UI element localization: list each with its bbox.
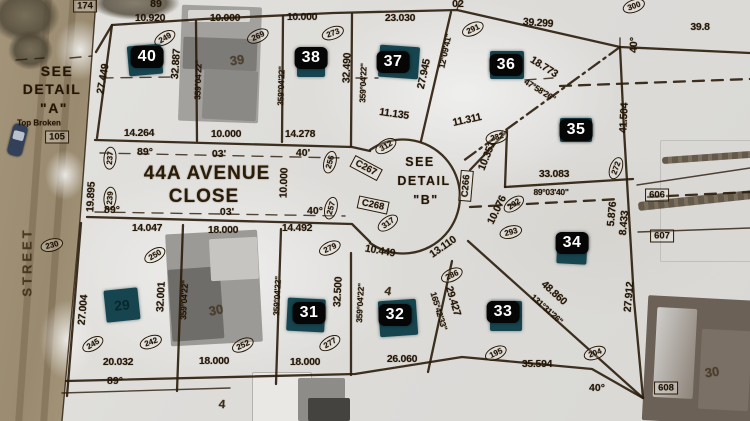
lot-badge-37: 37 bbox=[377, 51, 410, 73]
lot-badge-40: 40 bbox=[131, 46, 164, 68]
lot-badge-33: 33 bbox=[487, 301, 520, 323]
lot-badge-34: 34 bbox=[556, 232, 589, 254]
lot-badge-31: 31 bbox=[293, 302, 326, 324]
lot-badge-36: 36 bbox=[490, 54, 523, 76]
lot-badge-32: 32 bbox=[379, 304, 412, 326]
lot-badge-38: 38 bbox=[295, 47, 328, 69]
badge-layer: 403837363534333231 bbox=[0, 0, 750, 421]
lot-badge-35: 35 bbox=[560, 119, 593, 141]
aerial-plat-map[interactable]: 29 1748910.92010.00010.00023.0300239.299… bbox=[0, 0, 750, 421]
